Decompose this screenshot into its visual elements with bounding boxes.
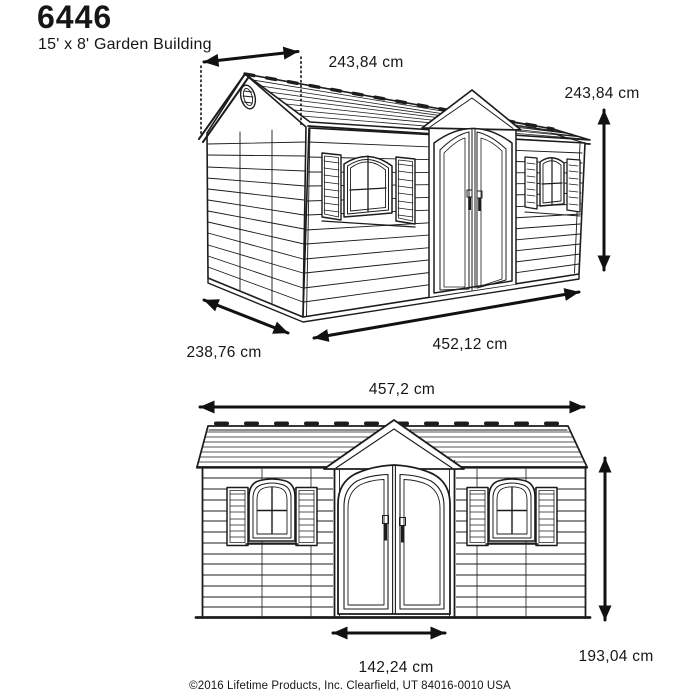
diagram-page: 6446 15' x 8' Garden Building 243,84 cm … (0, 0, 700, 700)
dim-label-length: 452,12 cm (432, 336, 507, 354)
product-subtitle: 15' x 8' Garden Building (38, 36, 212, 54)
copyright-notice: ©2016 Lifetime Products, Inc. Clearfield… (0, 680, 700, 692)
dim-label-door-width: 142,24 cm (358, 659, 433, 677)
dim-label-height-3d: 243,84 cm (564, 85, 639, 103)
gable-end-wall-3d (199, 74, 306, 317)
model-number: 6446 (37, 1, 112, 35)
right-window-front (467, 479, 557, 546)
dim-label-roof-width: 243,84 cm (328, 54, 403, 72)
roof-width-arrow-3d (204, 52, 298, 63)
dim-label-front-height: 193,04 cm (578, 648, 653, 666)
dim-label-front-width: 457,2 cm (369, 381, 435, 399)
left-window-front (227, 479, 317, 546)
dim-label-depth: 238,76 cm (186, 344, 261, 362)
elevation-drawing (196, 420, 590, 618)
double-doors-3d (422, 90, 521, 297)
diagram-canvas (0, 0, 700, 700)
perspective-drawing (199, 74, 590, 322)
